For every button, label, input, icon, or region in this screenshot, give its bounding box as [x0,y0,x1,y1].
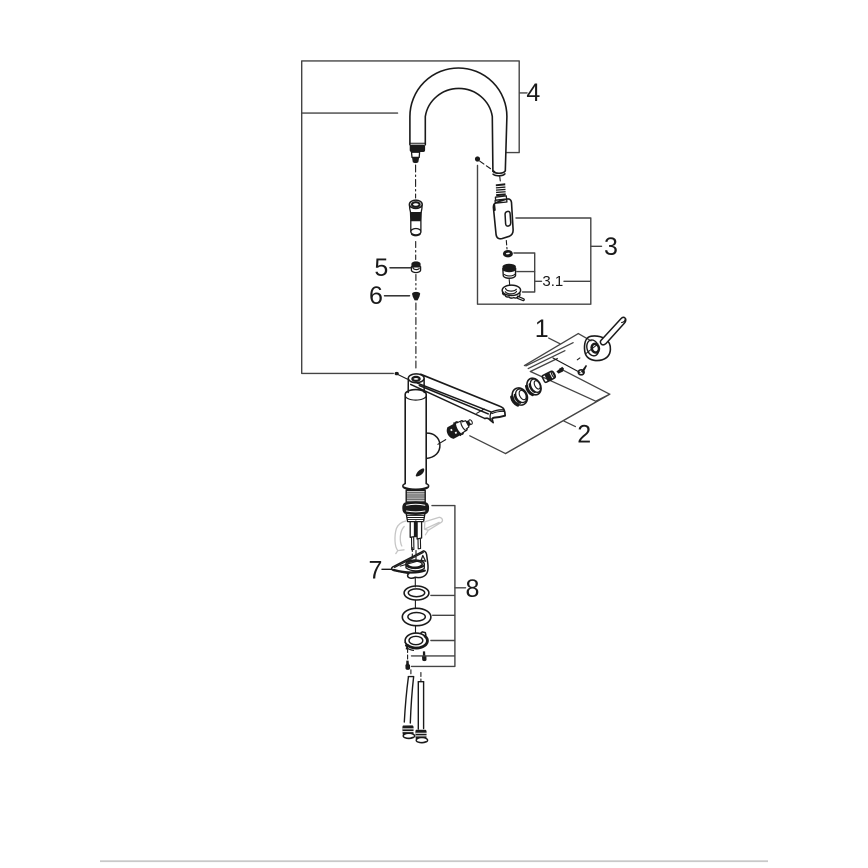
svg-text:7: 7 [369,557,383,585]
svg-text:2: 2 [577,421,591,449]
svg-text:8: 8 [466,575,480,603]
svg-text:1: 1 [535,315,549,343]
svg-text:5: 5 [374,254,388,282]
svg-text:3: 3 [604,233,618,261]
svg-text:6: 6 [369,282,383,310]
svg-text:4: 4 [526,79,540,107]
svg-text:3.1: 3.1 [542,273,563,290]
